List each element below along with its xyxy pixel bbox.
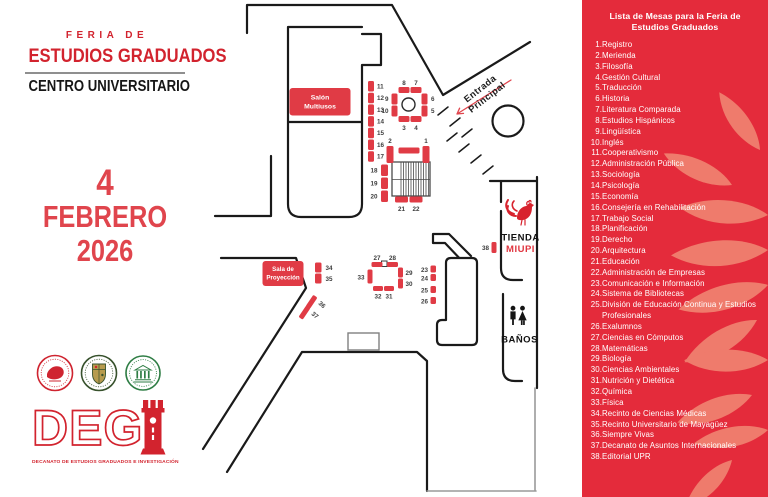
stage-structure xyxy=(437,258,477,345)
mesa-number: 1. xyxy=(588,40,602,51)
seal-shield-icon xyxy=(82,356,117,391)
mesa-list-item: 34.Recinto de Ciencias Médicas xyxy=(588,409,766,420)
table-9 xyxy=(392,94,398,105)
table-22 xyxy=(410,197,423,203)
mesa-number: 15. xyxy=(588,192,602,203)
divider xyxy=(25,72,185,74)
table-number: 11 xyxy=(377,84,384,91)
mesa-list-item: 23.Comunicación e Información xyxy=(588,279,766,290)
table-21 xyxy=(395,197,408,203)
event-date: 4 FEBRERO 2026 xyxy=(15,165,195,268)
mesa-list-item: 33.Física xyxy=(588,398,766,409)
mesa-label: Sociología xyxy=(602,170,766,181)
mesa-label: División de Educación Continua y Estudio… xyxy=(602,300,766,322)
mesa-number: 3. xyxy=(588,62,602,73)
table-number: 12 xyxy=(377,95,385,102)
mesa-list-item: 26.Exalumnos xyxy=(588,322,766,333)
mesa-label: Química xyxy=(602,387,766,398)
table-3 xyxy=(399,116,410,122)
table-number: 9 xyxy=(385,96,389,103)
restroom-icons xyxy=(510,306,526,325)
mesa-number: 5. xyxy=(588,83,602,94)
mesa-number: 6. xyxy=(588,94,602,105)
mesa-number: 28. xyxy=(588,344,602,355)
mesa-list: 1.Registro2.Merienda3.Filosofía4.Gestión… xyxy=(588,40,766,463)
mesa-list-item: 5.Traducción xyxy=(588,83,766,94)
table-26 xyxy=(431,297,437,304)
table-12 xyxy=(368,93,374,104)
mesa-label: Lingüística xyxy=(602,127,766,138)
mesa-label: Recinto de Ciencias Médicas xyxy=(602,409,766,420)
date-month: FEBRERO xyxy=(31,200,179,234)
rooster-icon xyxy=(506,200,534,225)
mesa-label: Historia xyxy=(602,94,766,105)
mesa-label: Exalumnos xyxy=(602,322,766,333)
mesa-list-item: 4.Gestión Cultural xyxy=(588,73,766,84)
table-number: 20 xyxy=(370,194,378,201)
table-number: 38 xyxy=(482,245,490,252)
table-8 xyxy=(399,87,410,93)
table-16 xyxy=(368,140,374,151)
mesa-list-item: 27.Ciencias en Cómputos xyxy=(588,333,766,344)
mesa-list-item: 21.Educación xyxy=(588,257,766,268)
mesa-label: Gestión Cultural xyxy=(602,73,766,84)
table-number: 25 xyxy=(421,288,429,295)
table-number: 35 xyxy=(326,276,334,283)
mesa-list-item: 28.Matemáticas xyxy=(588,344,766,355)
mesa-number: 29. xyxy=(588,354,602,365)
date-year: 2026 xyxy=(31,234,179,268)
mesa-label: Física xyxy=(602,398,766,409)
table-25 xyxy=(431,286,437,293)
mesa-list-item: 30.Ciencias Ambientales xyxy=(588,365,766,376)
glass-walls xyxy=(427,388,536,491)
table-5 xyxy=(422,106,428,117)
table-27 xyxy=(372,262,383,267)
mesa-label: Ciencias en Cómputos xyxy=(602,333,766,344)
table-14 xyxy=(368,116,374,127)
ramp-hatching xyxy=(438,107,493,174)
mesa-label: Psicología xyxy=(602,181,766,192)
mesa-label: Derecho xyxy=(602,235,766,246)
mesa-list-item: 16.Consejería en Rehabilitación xyxy=(588,203,766,214)
table-37 xyxy=(299,305,311,319)
table-number: 29 xyxy=(406,270,414,277)
mesa-label: Decanato de Asuntos Internacionales xyxy=(602,441,766,452)
table-number: 5 xyxy=(431,108,435,115)
mesa-label: Biología xyxy=(602,354,766,365)
mesa-label: Cooperativismo xyxy=(602,148,766,159)
table-number: 31 xyxy=(385,294,393,301)
date-day: 4 xyxy=(29,165,182,200)
table-number: 27 xyxy=(373,255,381,262)
mesa-number: 11. xyxy=(588,148,602,159)
seal-green-icon xyxy=(126,356,160,390)
mesa-list-item: 12.Administración Pública xyxy=(588,159,766,170)
seal-red-icon xyxy=(38,356,73,391)
mesa-list-item: 22.Administración de Empresas xyxy=(588,268,766,279)
mesa-number: 4. xyxy=(588,73,602,84)
mesa-list-item: 37.Decanato de Asuntos Internacionales xyxy=(588,441,766,452)
column-circle xyxy=(493,106,524,137)
mesa-number: 17. xyxy=(588,214,602,225)
mesa-number: 12. xyxy=(588,159,602,170)
table-6 xyxy=(422,94,428,105)
mesa-label: Editorial UPR xyxy=(602,452,766,463)
table-18 xyxy=(381,165,388,177)
degi-tagline: DECANATO DE ESTUDIOS GRADUADOS E INVESTI… xyxy=(32,457,179,465)
university-seals xyxy=(33,351,165,395)
mesa-label: Recinto Universitario de Mayagüez xyxy=(602,420,766,431)
table-17 xyxy=(368,151,374,162)
mesa-label: Ciencias Ambientales xyxy=(602,365,766,376)
table-31 xyxy=(384,286,394,291)
table-number: 32 xyxy=(374,294,382,301)
flyer-page: FERIA DE ESTUDIOS GRADUADOS CENTRO UNIVE… xyxy=(0,0,768,497)
mesa-label: Siempre Vivas xyxy=(602,430,766,441)
mesa-list-item: 29.Biología xyxy=(588,354,766,365)
mesa-label: Planificación xyxy=(602,224,766,235)
table-23 xyxy=(431,266,437,273)
mesa-number: 18. xyxy=(588,224,602,235)
mesa-number: 2. xyxy=(588,51,602,62)
table-29 xyxy=(398,268,403,278)
mesa-number: 7. xyxy=(588,105,602,116)
svg-text:Salón: Salón xyxy=(311,95,330,102)
table-number: 13 xyxy=(377,107,385,114)
table-number: 18 xyxy=(370,168,378,175)
mesa-list-item: 25.División de Educación Continua y Estu… xyxy=(588,300,766,322)
tienda-label: TIENDA xyxy=(501,233,539,244)
mesa-list-item: 17.Trabajo Social xyxy=(588,214,766,225)
table-2 xyxy=(387,146,394,163)
mesa-number: 35. xyxy=(588,420,602,431)
mesa-label: Arquitectura xyxy=(602,246,766,257)
table-aux xyxy=(399,148,420,154)
mesa-number: 37. xyxy=(588,441,602,452)
svg-text:Multiusos: Multiusos xyxy=(304,104,336,111)
mesa-list-item: 8.Estudios Hispánicos xyxy=(588,116,766,127)
round-table xyxy=(402,98,415,111)
mesa-number: 33. xyxy=(588,398,602,409)
table-32 xyxy=(373,286,383,291)
mesa-list-item: 35.Recinto Universitario de Mayagüez xyxy=(588,420,766,431)
mesa-number: 31. xyxy=(588,376,602,387)
mesa-list-item: 31.Nutrición y Dietética xyxy=(588,376,766,387)
event-kicker: FERIA DE xyxy=(19,30,195,41)
panel-title-line2: Estudios Graduados xyxy=(582,22,768,33)
event-title: ESTUDIOS GRADUADOS xyxy=(29,45,182,68)
mesa-number: 24. xyxy=(588,289,602,300)
mesa-list-item: 10.Inglés xyxy=(588,138,766,149)
table-number: 16 xyxy=(377,142,385,149)
table-10 xyxy=(392,106,398,117)
mesa-number: 27. xyxy=(588,333,602,344)
table-30 xyxy=(398,279,403,289)
table-11 xyxy=(368,81,374,92)
table-number: 34 xyxy=(326,265,334,272)
mesa-list-item: 2.Merienda xyxy=(588,51,766,62)
mesa-label: Consejería en Rehabilitación xyxy=(602,203,766,214)
table-15 xyxy=(368,128,374,139)
svg-text:Proyección: Proyección xyxy=(266,275,300,282)
mesa-number: 13. xyxy=(588,170,602,181)
table-number: 37 xyxy=(310,311,320,321)
miupi-label: MIUPI xyxy=(506,244,535,255)
table-19 xyxy=(381,178,388,190)
table-number: 14 xyxy=(377,119,385,126)
mesa-list-panel: Lista de Mesas para la Feria de Estudios… xyxy=(582,0,768,497)
mesa-list-item: 11.Cooperativismo xyxy=(588,148,766,159)
mesa-number: 21. xyxy=(588,257,602,268)
table-number: 26 xyxy=(421,299,429,306)
table-13 xyxy=(368,104,374,115)
table-number: 4 xyxy=(414,125,418,132)
table-number: 36 xyxy=(317,300,327,310)
svg-text:Sala de: Sala de xyxy=(272,266,294,273)
mesa-number: 23. xyxy=(588,279,602,290)
mesa-number: 25. xyxy=(588,300,602,322)
mesa-list-item: 15.Economía xyxy=(588,192,766,203)
mesa-number: 20. xyxy=(588,246,602,257)
mesa-label: Trabajo Social xyxy=(602,214,766,225)
mesa-list-item: 9.Lingüística xyxy=(588,127,766,138)
mesa-label: Nutrición y Dietética xyxy=(602,376,766,387)
table-number: 22 xyxy=(412,206,420,213)
mesa-number: 22. xyxy=(588,268,602,279)
table-24 xyxy=(431,274,437,281)
mesa-label: Estudios Hispánicos xyxy=(602,116,766,127)
table-number: 28 xyxy=(389,255,397,262)
table-number: 33 xyxy=(357,275,365,282)
mesa-number: 19. xyxy=(588,235,602,246)
mesa-label: Administración de Empresas xyxy=(602,268,766,279)
mesa-list-item: 3.Filosofía xyxy=(588,62,766,73)
mesa-label: Sistema de Bibliotecas xyxy=(602,289,766,300)
table-4 xyxy=(411,116,422,122)
mesa-label: Registro xyxy=(602,40,766,51)
mesa-list-item: 24.Sistema de Bibliotecas xyxy=(588,289,766,300)
table-38 xyxy=(492,242,497,253)
mesa-number: 38. xyxy=(588,452,602,463)
table-number: 3 xyxy=(402,125,406,132)
mesa-number: 26. xyxy=(588,322,602,333)
table-number: 30 xyxy=(406,281,414,288)
table-number: 15 xyxy=(377,130,385,137)
mesa-list-item: 18.Planificación xyxy=(588,224,766,235)
table-7 xyxy=(411,87,422,93)
mesa-label: Merienda xyxy=(602,51,766,62)
table-34 xyxy=(315,263,322,273)
table-number: 24 xyxy=(421,276,429,283)
mesa-label: Literatura Comparada xyxy=(602,105,766,116)
panel-title-line1: Lista de Mesas para la Feria de xyxy=(582,11,768,22)
stairs xyxy=(392,162,430,196)
mesa-list-item: 19.Derecho xyxy=(588,235,766,246)
mesa-label: Inglés xyxy=(602,138,766,149)
table-number: 23 xyxy=(421,267,429,274)
table-number: 17 xyxy=(377,154,385,161)
table-28 xyxy=(387,262,398,267)
mesa-label: Filosofía xyxy=(602,62,766,73)
mesa-number: 30. xyxy=(588,365,602,376)
banos-label: BAÑOS xyxy=(501,335,538,346)
mesa-list-item: 7.Literatura Comparada xyxy=(588,105,766,116)
mesa-label: Matemáticas xyxy=(602,344,766,355)
mesa-label: Comunicación e Información xyxy=(602,279,766,290)
sala-proyeccion-label: Sala de Proyección xyxy=(263,261,304,286)
mesa-label: Economía xyxy=(602,192,766,203)
table-number: 7 xyxy=(414,80,418,87)
mesa-list-item: 32.Química xyxy=(588,387,766,398)
mesa-number: 10. xyxy=(588,138,602,149)
tower-icon xyxy=(141,400,166,455)
table-20 xyxy=(381,191,388,203)
mesa-label: Educación xyxy=(602,257,766,268)
degi-logo: DEG DECANATO DE ESTUDIOS GRADUADOS E INV… xyxy=(30,393,182,469)
table-number: 21 xyxy=(398,206,406,213)
table-number: 8 xyxy=(402,80,406,87)
event-subtitle: CENTRO UNIVERSITARIO xyxy=(29,78,182,96)
table-33 xyxy=(368,270,373,284)
mesa-list-item: 1.Registro xyxy=(588,40,766,51)
mesa-number: 9. xyxy=(588,127,602,138)
table-number: 1 xyxy=(424,138,428,145)
event-brand: FERIA DE ESTUDIOS GRADUADOS CENTRO UNIVE… xyxy=(15,30,195,96)
mesa-list-item: 14.Psicología xyxy=(588,181,766,192)
mesa-number: 36. xyxy=(588,430,602,441)
mesa-number: 8. xyxy=(588,116,602,127)
mesa-list-item: 36.Siempre Vivas xyxy=(588,430,766,441)
mesa-list-item: 13.Sociología xyxy=(588,170,766,181)
mesa-list-item: 6.Historia xyxy=(588,94,766,105)
mesa-list-item: 38.Editorial UPR xyxy=(588,452,766,463)
mesa-list-item: 20.Arquitectura xyxy=(588,246,766,257)
mesa-label: Administración Pública xyxy=(602,159,766,170)
venue-map: Salón Multiusos Sala de Proyección Entra… xyxy=(195,0,580,497)
table-35 xyxy=(315,274,322,284)
props-table xyxy=(348,333,379,350)
mesa-label: Traducción xyxy=(602,83,766,94)
table-number: 2 xyxy=(388,138,392,145)
salon-multiusos-label: Salón Multiusos xyxy=(290,88,351,116)
degi-letters: DEG xyxy=(32,400,143,456)
table-1 xyxy=(423,146,430,163)
table-number: 19 xyxy=(370,181,378,188)
mesa-number: 16. xyxy=(588,203,602,214)
mesa-number: 32. xyxy=(588,387,602,398)
mesa-number: 14. xyxy=(588,181,602,192)
mesa-number: 34. xyxy=(588,409,602,420)
table-number: 6 xyxy=(431,96,435,103)
